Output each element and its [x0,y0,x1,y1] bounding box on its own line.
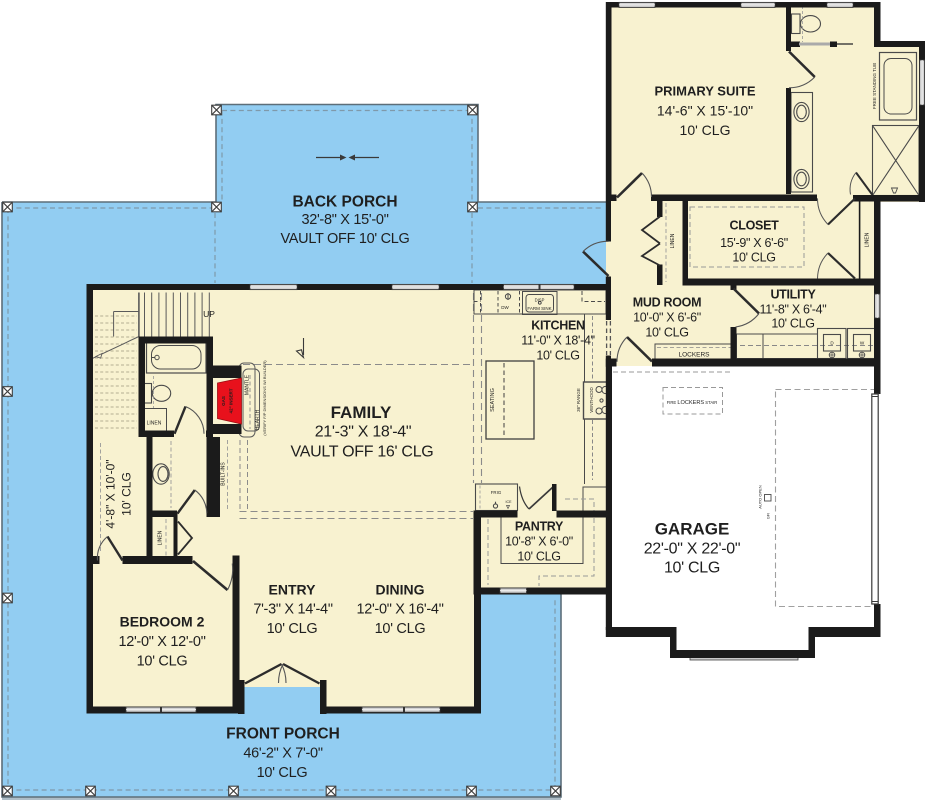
svg-text:10' CLG: 10' CLG [267,621,318,637]
svg-text:7'-3" X 14'-4": 7'-3" X 14'-4" [253,602,332,618]
svg-text:32'-8" X 15'-0": 32'-8" X 15'-0" [301,212,388,228]
svg-text:LOCKERS: LOCKERS [678,352,710,359]
svg-text:VENTHOOD: VENTHOOD [589,387,594,413]
svg-text:46'-2" X 7'-0": 46'-2" X 7'-0" [243,746,322,762]
svg-text:10'-0" X 6'-6": 10'-0" X 6'-6" [633,311,701,325]
svg-text:GAS: GAS [221,396,226,406]
svg-text:36" RANGE: 36" RANGE [576,388,581,412]
svg-text:KITCHEN: KITCHEN [531,319,585,333]
svg-text:SEATING: SEATING [490,388,496,412]
svg-text:DINING: DINING [376,582,425,598]
svg-text:AUTO OPEN: AUTO OPEN [758,485,763,509]
svg-text:LINEN: LINEN [158,530,164,545]
svg-text:FREE STANDING TUB: FREE STANDING TUB [872,63,877,109]
svg-text:21'-3" X 18'-4": 21'-3" X 18'-4" [315,424,412,441]
svg-text:14'-6" X 15'-10": 14'-6" X 15'-10" [657,103,753,119]
svg-text:UTILITY: UTILITY [770,288,816,302]
svg-text:ICE: ICE [506,500,513,504]
svg-text:10' CLG: 10' CLG [536,349,579,363]
svg-text:CLOSET: CLOSET [730,219,780,233]
svg-text:10' CLG: 10' CLG [771,317,814,331]
svg-text:FRONT PORCH: FRONT PORCH [226,726,340,743]
svg-text:GFI: GFI [767,513,771,519]
svg-text:UP: UP [203,309,215,319]
svg-text:10'-8" X 6'-0": 10'-8" X 6'-0" [505,535,573,549]
svg-text:(VERIFY F/P DIMENSIONS W/ BUIL: (VERIFY F/P DIMENSIONS W/ BUILDER) [262,360,267,436]
svg-text:PRIMARY SUITE: PRIMARY SUITE [654,84,755,99]
svg-text:10' CLG: 10' CLG [375,621,426,637]
svg-text:VAULT OFF 10' CLG: VAULT OFF 10' CLG [280,231,409,247]
svg-text:FRIG: FRIG [491,490,502,495]
svg-text:10' CLG: 10' CLG [645,326,688,340]
svg-text:MANTLE: MANTLE [245,374,251,395]
svg-text:10' CLG: 10' CLG [732,251,775,265]
svg-text:10' CLG: 10' CLG [680,122,731,138]
svg-text:MUD ROOM: MUD ROOM [633,296,701,310]
svg-text:BUILT-INS: BUILT-INS [221,462,227,486]
svg-text:10' CLG: 10' CLG [120,472,134,516]
svg-text:LINEN: LINEN [670,233,676,248]
svg-text:11'-0" X 18'-4": 11'-0" X 18'-4" [521,334,595,348]
svg-text:11'-8" X 6'-4": 11'-8" X 6'-4" [760,303,827,317]
svg-text:PANTRY: PANTRY [515,520,564,534]
svg-text:12'-0" X 12'-0": 12'-0" X 12'-0" [118,634,205,650]
svg-text:LINEN: LINEN [147,421,162,427]
svg-text:HEARTH: HEARTH [255,409,261,430]
svg-text:DW: DW [501,305,509,310]
svg-text:12'-0" X 16'-4": 12'-0" X 16'-4" [356,602,443,618]
svg-text:ENTRY: ENTRY [269,582,317,598]
svg-text:BACK PORCH: BACK PORCH [292,194,397,211]
svg-text:22'-0" X 22'-0": 22'-0" X 22'-0" [644,541,741,558]
svg-text:10' CLG: 10' CLG [257,765,308,781]
svg-text:15'-9" X 6'-6": 15'-9" X 6'-6" [720,236,788,250]
svg-text:BEDROOM 2: BEDROOM 2 [120,614,205,630]
svg-text:DISP: DISP [535,298,545,303]
svg-text:10' CLG: 10' CLG [664,560,720,577]
svg-text:42" INSERT: 42" INSERT [229,388,234,413]
svg-text:GARAGE: GARAGE [655,520,730,539]
svg-text:4'-8" X 10'-0": 4'-8" X 10'-0" [104,459,118,528]
svg-text:FARM SINK: FARM SINK [527,306,551,311]
svg-text:W: W [860,341,865,346]
svg-text:10' CLG: 10' CLG [517,550,560,564]
svg-text:FAMILY: FAMILY [331,403,392,422]
svg-text:VAULT OFF 16' CLG: VAULT OFF 16' CLG [291,444,434,461]
svg-text:10' CLG: 10' CLG [137,654,188,670]
svg-text:LINEN: LINEN [865,232,871,247]
